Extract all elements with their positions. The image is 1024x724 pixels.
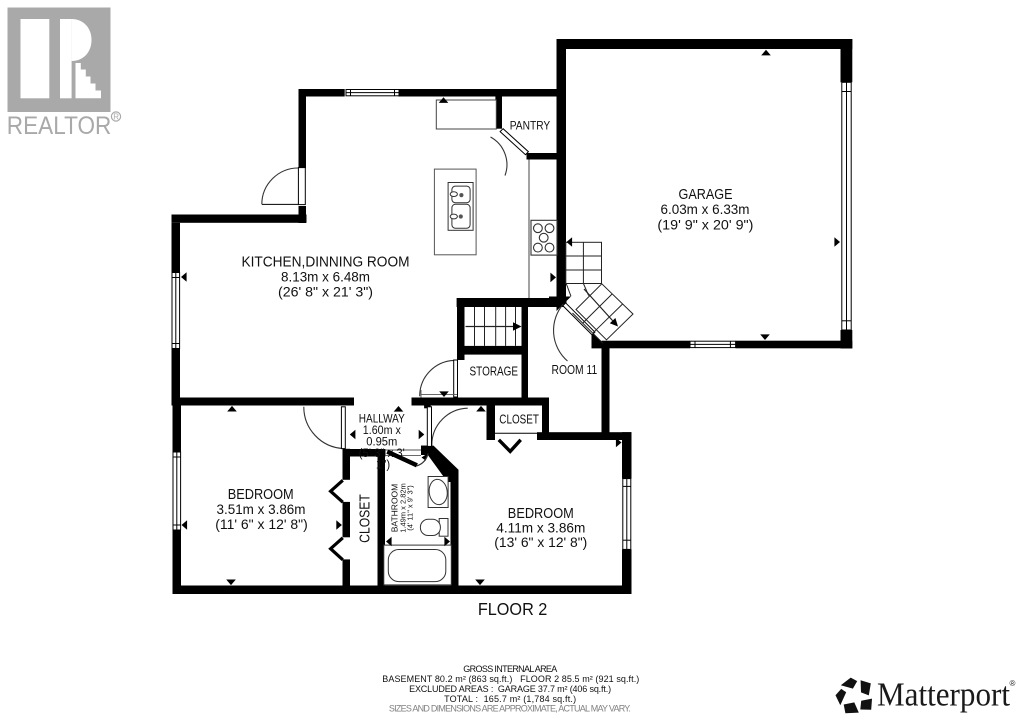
svg-text:(26' 8" x 21' 3"): (26' 8" x 21' 3") bbox=[278, 284, 373, 300]
svg-text:0.95m: 0.95m bbox=[366, 437, 397, 449]
svg-text:BASEMENT 80.2 m² (863 sq.ft.): BASEMENT 80.2 m² (863 sq.ft.) FLOOR 2 85… bbox=[382, 674, 639, 684]
svg-text:EXCLUDED AREAS : GARAGE 37.7: EXCLUDED AREAS : GARAGE 37.7 m² (406 sq.… bbox=[409, 684, 611, 694]
svg-text:(4' 11" x 9' 3"): (4' 11" x 9' 3") bbox=[406, 485, 415, 531]
svg-text:HALLWAY: HALLWAY bbox=[359, 413, 405, 425]
svg-text:GROSS INTERNAL AREA: GROSS INTERNAL AREA bbox=[463, 664, 557, 674]
svg-text:PANTRY: PANTRY bbox=[510, 119, 551, 133]
svg-text:CLOSET: CLOSET bbox=[499, 412, 539, 426]
svg-text:(11' 6" x 12' 8"): (11' 6" x 12' 8") bbox=[215, 516, 308, 532]
svg-text:TOTAL : 165.7 m² (1,784 sq.ft: TOTAL : 165.7 m² (1,784 sq.ft.) bbox=[444, 694, 576, 704]
svg-text:ROOM 11: ROOM 11 bbox=[552, 362, 598, 377]
svg-text:8.13m x 6.48m: 8.13m x 6.48m bbox=[281, 269, 370, 285]
svg-text:1.60m x: 1.60m x bbox=[363, 425, 401, 437]
svg-text:3.51m x 3.86m: 3.51m x 3.86m bbox=[217, 501, 306, 517]
svg-text:®: ® bbox=[1010, 679, 1016, 688]
svg-text:Matterport: Matterport bbox=[877, 677, 1010, 714]
svg-text:(13' 6" x 12' 8"): (13' 6" x 12' 8") bbox=[494, 534, 587, 550]
svg-text:SIZES AND DIMENSIONS ARE APPRO: SIZES AND DIMENSIONS ARE APPROXIMATE, AC… bbox=[389, 704, 631, 714]
svg-text:(19' 9" x 20' 9"): (19' 9" x 20' 9") bbox=[657, 216, 753, 232]
svg-text:1"): 1") bbox=[376, 459, 390, 471]
svg-text:REALTOR: REALTOR bbox=[7, 112, 112, 140]
svg-text:R: R bbox=[113, 113, 119, 122]
svg-text:FLOOR 2: FLOOR 2 bbox=[478, 599, 548, 619]
svg-text:STORAGE: STORAGE bbox=[470, 365, 519, 379]
svg-text:6.03m x 6.33m: 6.03m x 6.33m bbox=[661, 201, 750, 217]
svg-text:CLOSET: CLOSET bbox=[356, 494, 373, 543]
